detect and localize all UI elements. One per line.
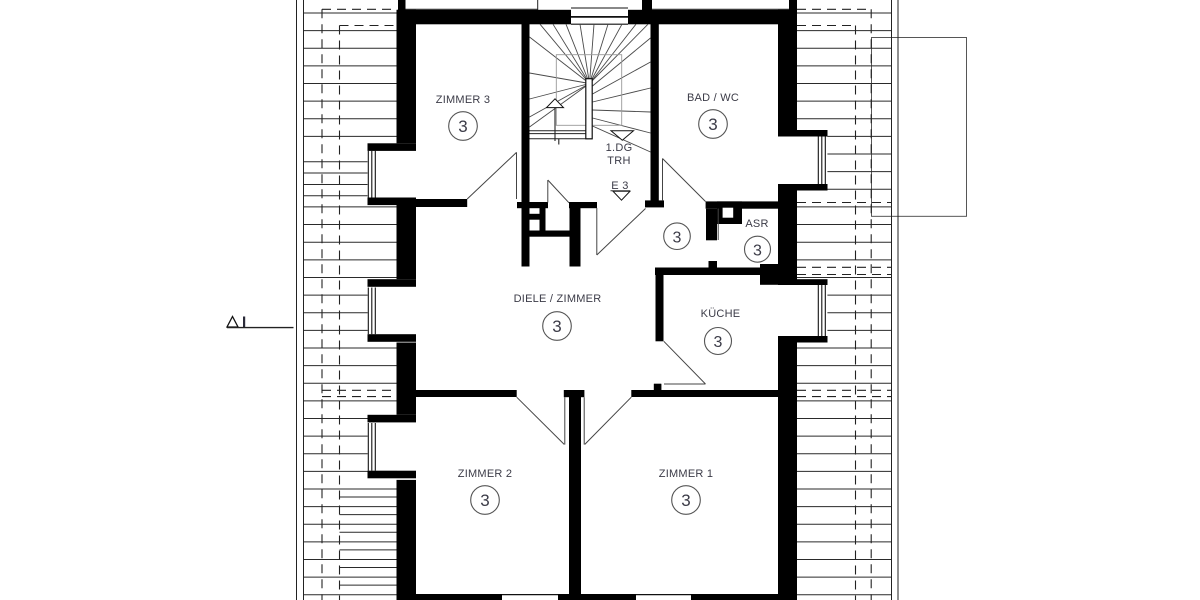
svg-text:ZIMMER 2: ZIMMER 2 <box>458 468 513 480</box>
svg-text:BAD / WC: BAD / WC <box>687 92 739 104</box>
svg-text:3: 3 <box>552 317 561 336</box>
svg-text:ZIMMER 1: ZIMMER 1 <box>659 468 714 480</box>
svg-text:ZIMMER 3: ZIMMER 3 <box>436 94 491 106</box>
svg-text:3: 3 <box>673 229 682 246</box>
svg-text:KÜCHE: KÜCHE <box>701 308 741 320</box>
svg-text:3: 3 <box>480 491 489 510</box>
svg-text:E 3: E 3 <box>611 180 628 192</box>
svg-text:3: 3 <box>753 242 762 259</box>
svg-text:ASR: ASR <box>745 218 768 230</box>
svg-text:3: 3 <box>714 334 723 351</box>
svg-text:1.DG: 1.DG <box>606 142 633 154</box>
svg-text:3: 3 <box>708 115 717 134</box>
svg-text:DIELE / ZIMMER: DIELE / ZIMMER <box>514 293 602 305</box>
svg-text:3: 3 <box>681 491 690 510</box>
svg-text:TRH: TRH <box>607 155 631 167</box>
svg-text:3: 3 <box>458 117 467 136</box>
